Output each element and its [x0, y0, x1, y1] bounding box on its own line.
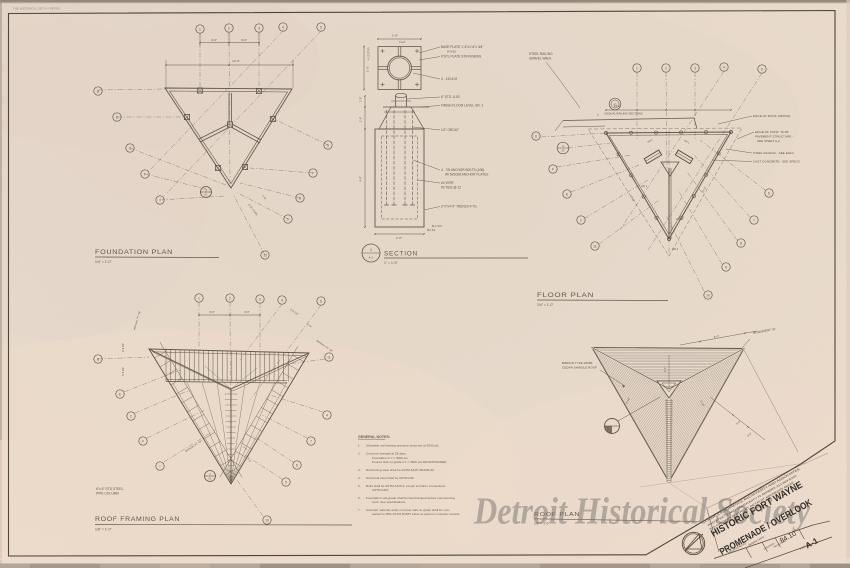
- svg-text:6"STL PLATE STIFFENERS: 6"STL PLATE STIFFENERS: [441, 55, 481, 59]
- svg-text:FINISH FLOOR LEVEL GR. 2: FINISH FLOOR LEVEL GR. 2: [441, 104, 483, 108]
- svg-text:3: 3: [259, 298, 261, 302]
- svg-text:14'-0": 14'-0": [232, 59, 240, 63]
- svg-text:Reinforcing steel shall be AST: Reinforcing steel shall be ASTM A615 GRA…: [366, 468, 435, 472]
- svg-text:1/8" = 1'-0": 1/8" = 1'-0": [95, 528, 112, 532]
- svg-text:work. See specifications.: work. See specifications.: [372, 500, 406, 504]
- svg-text:1" = 1'-0": 1" = 1'-0": [384, 261, 399, 265]
- svg-text:5.: 5.: [358, 484, 361, 488]
- svg-text:7: 7: [310, 440, 312, 444]
- svg-text:PIPE COLUMN: PIPE COLUMN: [96, 492, 119, 496]
- svg-text:CAST CONCRETE - SEE SPECS: CAST CONCRETE - SEE SPECS: [753, 160, 800, 164]
- svg-text:5: 5: [761, 68, 763, 72]
- svg-text:EDGE OF CONC. SLAB: EDGE OF CONC. SLAB: [755, 130, 789, 134]
- svg-text:SECTION: SECTION: [384, 251, 418, 258]
- svg-text:2'-0": 2'-0": [396, 236, 402, 240]
- svg-text:I: I: [160, 199, 161, 203]
- svg-text:4 - 13/16 Ø: 4 - 13/16 Ø: [441, 77, 457, 81]
- svg-text:F: F: [142, 440, 144, 444]
- svg-text:#4 VERT.: #4 VERT.: [441, 181, 455, 185]
- svg-text:5: 5: [320, 300, 322, 304]
- svg-text:B-2 3/4: B-2 3/4: [432, 224, 442, 228]
- svg-text:G: G: [328, 356, 331, 360]
- svg-text:7.: 7.: [358, 508, 361, 512]
- svg-text:ASTM A307.: ASTM A307.: [372, 488, 390, 492]
- svg-text:pacted to 95% ASTM D1557 value: pacted to 95% ASTM D1557 value at optimu…: [372, 512, 460, 516]
- svg-text:GRAVEL WALK: GRAVEL WALK: [529, 57, 552, 61]
- svg-text:2: 2: [665, 67, 667, 71]
- svg-text:4 1/2"(TYP): 4 1/2"(TYP): [368, 47, 371, 60]
- svg-text:4: 4: [326, 414, 328, 418]
- svg-text:#3 TIES @ 12: #3 TIES @ 12: [441, 186, 461, 190]
- svg-text:4: 4: [723, 66, 725, 70]
- svg-text:BIRDON TYPE #4088: BIRDON TYPE #4088: [562, 361, 593, 365]
- svg-text:7: 7: [753, 219, 755, 223]
- svg-text:2'-6 1/2": 2'-6 1/2": [122, 343, 125, 352]
- svg-text:PAVEMENT STRUCTURE -: PAVEMENT STRUCTURE -: [755, 135, 793, 139]
- svg-text:G: G: [327, 144, 330, 148]
- svg-text:FOUNDATION PLAN: FOUNDATION PLAN: [95, 249, 173, 256]
- svg-text:9: 9: [287, 218, 289, 222]
- svg-text:1'-6": 1'-6": [392, 34, 398, 38]
- svg-text:4'-0": 4'-0": [241, 38, 247, 42]
- svg-text:10: 10: [265, 519, 269, 523]
- svg-text:4.: 4.: [358, 476, 361, 480]
- svg-text:2'-0"x4'-0" TRENCH FTG.: 2'-0"x4'-0" TRENCH FTG.: [441, 205, 478, 209]
- svg-text:SEE SHEET A-2: SEE SHEET A-2: [757, 139, 780, 143]
- svg-text:STEEL RAILING: STEEL RAILING: [529, 52, 553, 56]
- svg-text:F: F: [552, 168, 554, 172]
- svg-text:1/4" = 1'-0": 1/4" = 1'-0": [95, 260, 112, 264]
- svg-text:1: 1: [636, 67, 638, 71]
- svg-text:2: 2: [229, 297, 231, 301]
- svg-text:1: 1: [199, 28, 201, 32]
- svg-text:1.: 1.: [358, 444, 361, 448]
- svg-text:F: F: [144, 173, 146, 177]
- svg-text:GR 1: GR 1: [641, 184, 648, 188]
- svg-text:3'-0": 3'-0": [244, 310, 250, 314]
- svg-text:5'-3 1/2": 5'-3 1/2": [122, 367, 125, 376]
- svg-text:6" STD. A-53: 6" STD. A-53: [441, 95, 460, 99]
- svg-text:3'-0": 3'-0": [209, 310, 215, 314]
- svg-text:CEDAR SHINGLE ROOF: CEDAR SHINGLE ROOF: [562, 366, 597, 370]
- svg-text:STEEL RAILING - SEE ELEV.: STEEL RAILING - SEE ELEV.: [753, 151, 795, 155]
- svg-text:FLOOR PLAN: FLOOR PLAN: [537, 292, 594, 299]
- svg-text:GENERAL NOTES:: GENERAL NOTES:: [358, 435, 390, 439]
- svg-text:4 EQUAL RAILING SECTIONS: 4 EQUAL RAILING SECTIONS: [604, 112, 643, 116]
- svg-text:4'-1": 4'-1": [663, 367, 667, 372]
- svg-text:6: 6: [535, 135, 537, 139]
- svg-text:6: 6: [768, 192, 770, 196]
- svg-text:4: 4: [281, 299, 283, 303]
- svg-text:1'-0": 1'-0": [359, 117, 363, 122]
- svg-text:THE HISTORICAL SET A-0 REPRO: THE HISTORICAL SET A-0 REPRO: [13, 7, 60, 11]
- svg-text:EDGE OF ROOF (ABOVE): EDGE OF ROOF (ABOVE): [753, 114, 790, 118]
- svg-text:8: 8: [740, 242, 742, 246]
- svg-text:5: 5: [320, 26, 322, 30]
- svg-text:3: 3: [694, 67, 696, 71]
- svg-text:1: 1: [198, 297, 200, 301]
- svg-text:11: 11: [593, 245, 597, 249]
- svg-text:MONUMENT: MONUMENT: [664, 387, 675, 389]
- svg-text:Structural steel shall be ASTM: Structural steel shall be ASTM A36.: [366, 476, 415, 480]
- svg-text:6"x 6" STD STEEL: 6"x 6" STD STEEL: [96, 487, 124, 491]
- svg-text:V: V: [597, 113, 599, 117]
- svg-text:BASE PLATE 1'-6"x1'-6"x 3/4": BASE PLATE 1'-6"x1'-6"x 3/4": [441, 45, 483, 49]
- svg-text:Allowable soil bearing pressur: Allowable soil bearing pressure assumed …: [366, 444, 439, 448]
- svg-text:1'-6": 1'-6": [366, 66, 370, 72]
- svg-text:GR 2: GR 2: [672, 247, 679, 251]
- svg-text:4: 4: [282, 26, 284, 30]
- svg-text:ROOF FRAMING PLAN: ROOF FRAMING PLAN: [95, 516, 180, 523]
- svg-text:Poured slab on grade F'c = 350: Poured slab on grade F'c = 3500 psi AIR …: [372, 460, 447, 464]
- svg-text:3.: 3.: [358, 468, 361, 472]
- svg-text:4 - 7/8 ANCHOR BOLTS (A36): 4 - 7/8 ANCHOR BOLTS (A36): [441, 168, 484, 172]
- svg-text:10: 10: [706, 294, 710, 298]
- svg-text:Concrete strength at 28 days.: Concrete strength at 28 days.: [366, 452, 407, 456]
- svg-text:7: 7: [312, 172, 314, 176]
- svg-text:2: 2: [228, 27, 230, 31]
- svg-text:I: I: [160, 465, 161, 469]
- svg-text:4'-0": 4'-0": [359, 176, 363, 182]
- svg-text:W 9/16: W 9/16: [447, 50, 456, 54]
- svg-text:3: 3: [258, 27, 260, 31]
- svg-text:4'-0": 4'-0": [211, 38, 217, 42]
- svg-text:9: 9: [285, 481, 287, 485]
- svg-text:1'-0": 1'-0": [359, 97, 363, 102]
- svg-text:GR 2: GR 2: [676, 217, 683, 221]
- svg-text:W/ 5x5x3/8 ANCHOR PLATES: W/ 5x5x3/8 ANCHOR PLATES: [445, 173, 488, 177]
- svg-text:10: 10: [263, 254, 267, 258]
- svg-text:A2: A2: [613, 103, 617, 107]
- svg-text:A-1: A-1: [369, 256, 374, 260]
- svg-text:6.: 6.: [358, 496, 361, 500]
- svg-text:1/2" GROUT: 1/2" GROUT: [441, 128, 459, 132]
- svg-text:2.: 2.: [358, 452, 361, 456]
- svg-text:1/4" = 1'-0": 1/4" = 1'-0": [537, 303, 554, 307]
- svg-text:B-0 3/4: B-0 3/4: [427, 228, 436, 232]
- svg-text:2: 2: [580, 219, 582, 223]
- svg-text:4 1/2": 4 1/2": [399, 40, 406, 44]
- svg-text:9: 9: [725, 266, 727, 270]
